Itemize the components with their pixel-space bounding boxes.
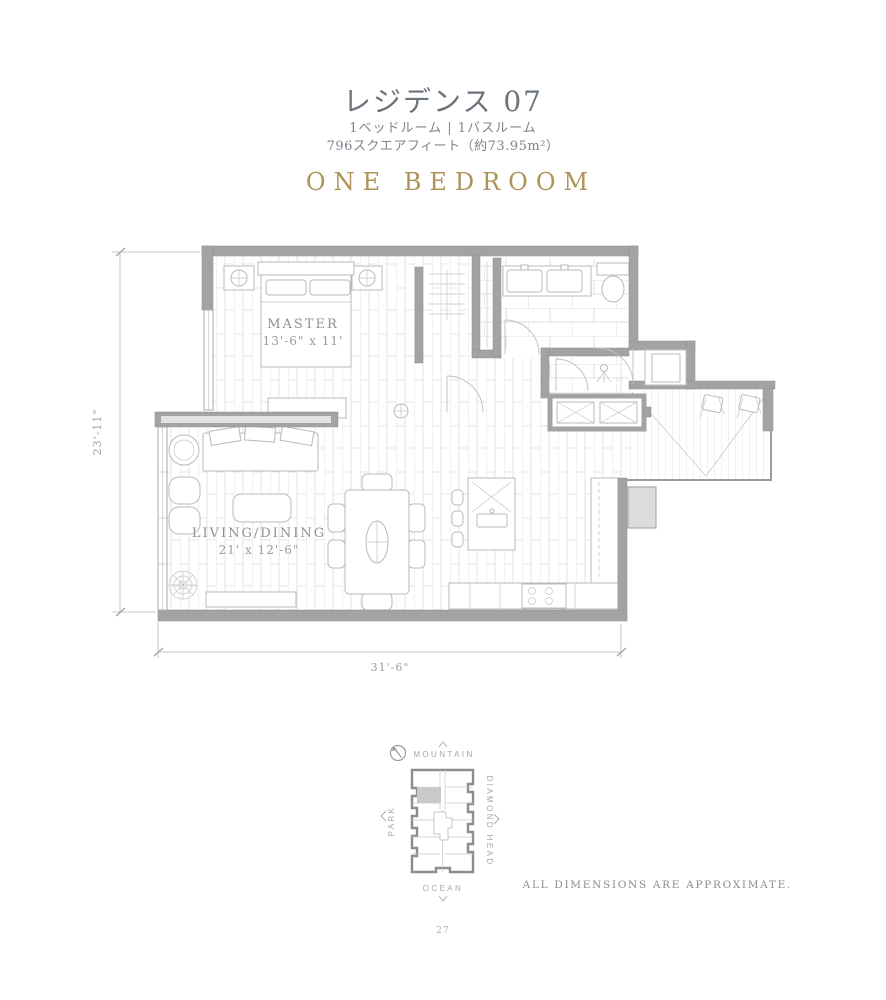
subtitle-rooms: 1ベッドルーム | 1バスルーム (0, 117, 886, 136)
master-label: MASTER (267, 317, 339, 332)
dimension-bottom-label: 31'-6" (371, 661, 410, 674)
coffee-table (233, 494, 291, 522)
disclaimer: ALL DIMENSIONS ARE APPROXIMATE. (523, 879, 792, 891)
range (522, 584, 566, 608)
page-number: 27 (0, 926, 886, 936)
direction-diamond-head: DIAMOND HEAD (485, 775, 494, 866)
kitchen-sink (477, 514, 507, 527)
toilet-bowl (602, 276, 624, 302)
living-dining-dims: 21' x 12'-6" (219, 543, 300, 557)
building-outline (412, 770, 473, 872)
floor-plan: MASTER 13'-6" x 11' LIVING/DINING 21' x … (85, 228, 795, 690)
shower-head (601, 365, 608, 372)
master-dims: 13'-6" x 11' (263, 334, 344, 348)
living-dining-label: LIVING/DINING (192, 526, 326, 541)
arrow-down-icon (439, 896, 447, 901)
direction-mountain: MOUNTAIN (413, 750, 474, 759)
toilet-tank (597, 263, 629, 275)
direction-ocean: OCEAN (423, 884, 463, 893)
arrow-left-icon (381, 811, 386, 821)
subtitle-area: 796スクエアフィート（約73.95m²） (0, 135, 886, 154)
unit-highlight (417, 787, 441, 803)
brochure-page: レジデンス 07 1ベッドルーム | 1バスルーム 796スクエアフィート（約7… (0, 0, 886, 1000)
direction-park: PARK (387, 806, 396, 837)
column (628, 487, 656, 528)
entry-alcove (652, 354, 680, 382)
dimension-left-label: 23'-11" (91, 409, 104, 456)
arrow-up-icon (439, 742, 447, 747)
key-plan: MOUNTAIN PARK DIAMOND HEAD OCEAN (365, 733, 515, 908)
page-title: レジデンス 07 (0, 80, 886, 120)
armchair (169, 477, 200, 504)
compass-icon (391, 746, 406, 761)
plan-type-heading: ONE BEDROOM (0, 168, 886, 196)
media-console (206, 592, 296, 607)
